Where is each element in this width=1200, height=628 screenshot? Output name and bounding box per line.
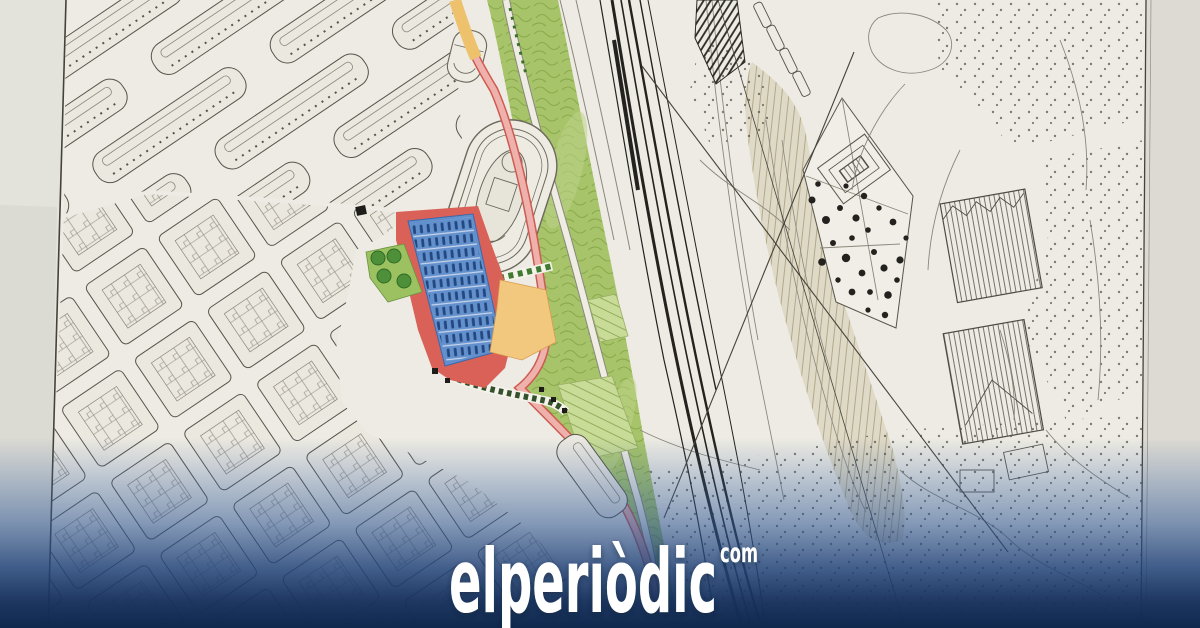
right-margin bbox=[1141, 0, 1200, 628]
industrial-building bbox=[940, 189, 1042, 302]
urban-plan-map bbox=[0, 0, 1200, 628]
news-image: elperiòdic com bbox=[0, 0, 1200, 628]
